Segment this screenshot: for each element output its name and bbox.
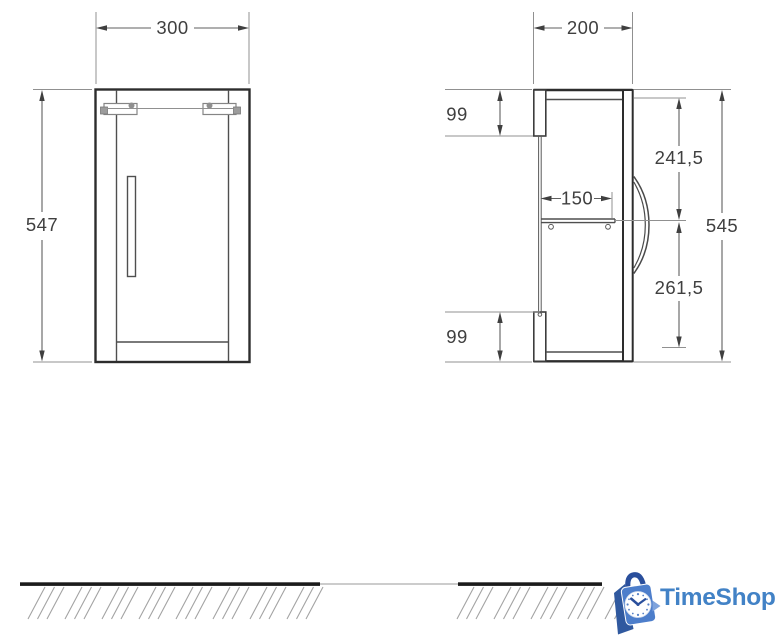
front-cabinet-outline: [96, 90, 250, 363]
side-view: 200 99 99 241,5 261,5: [445, 12, 738, 362]
top-mount-dim-label: 99: [446, 104, 468, 125]
ground: [20, 582, 632, 619]
front-height-dimension: 547: [26, 90, 92, 363]
top-mount-dimension: 99: [446, 90, 502, 136]
side-mount-bracket-top: [534, 90, 546, 136]
bottom-mount-dim-label: 99: [446, 326, 468, 347]
shelf: [541, 219, 615, 229]
back-panel: [539, 136, 542, 313]
upper-section-dimension: 241,5: [655, 98, 704, 220]
front-door-handle: [128, 177, 136, 277]
lower-section-dimension: 261,5: [655, 222, 704, 348]
front-view: 300 547: [26, 12, 250, 362]
lower-section-dim-label: 261,5: [655, 277, 704, 298]
shopping-bag-icon: [614, 573, 661, 635]
side-panels: [546, 100, 623, 353]
front-width-dim-label: 300: [156, 17, 188, 38]
front-height-dim-label: 547: [26, 214, 58, 235]
floor-hatching-left: [28, 587, 323, 619]
timeshop-logo: TimeShop: [614, 573, 776, 635]
bottom-mount-dimension: 99: [446, 312, 502, 362]
clock-icon: [625, 592, 651, 618]
shelf-depth-dimension: 150: [541, 188, 613, 209]
side-mount-bracket-bottom: [534, 312, 546, 361]
product-dimension-drawing: 300 547: [0, 0, 779, 640]
side-height-dimension: 545: [706, 90, 738, 362]
brand-name: TimeShop: [660, 584, 776, 611]
side-door-handle: [634, 177, 649, 274]
floor-hatching-right: [457, 587, 632, 619]
front-width-dimension: 300: [96, 12, 249, 84]
shelf-depth-dim-label: 150: [561, 188, 593, 209]
back-panel-pin: [538, 313, 542, 317]
floor-line-left: [20, 582, 320, 586]
side-depth-dim-label: 200: [567, 17, 599, 38]
upper-section-dim-label: 241,5: [655, 147, 704, 168]
side-door-panel: [623, 90, 633, 361]
floor-line-right: [458, 582, 602, 586]
side-height-dim-label: 545: [706, 215, 738, 236]
side-depth-dimension: 200: [534, 17, 633, 38]
